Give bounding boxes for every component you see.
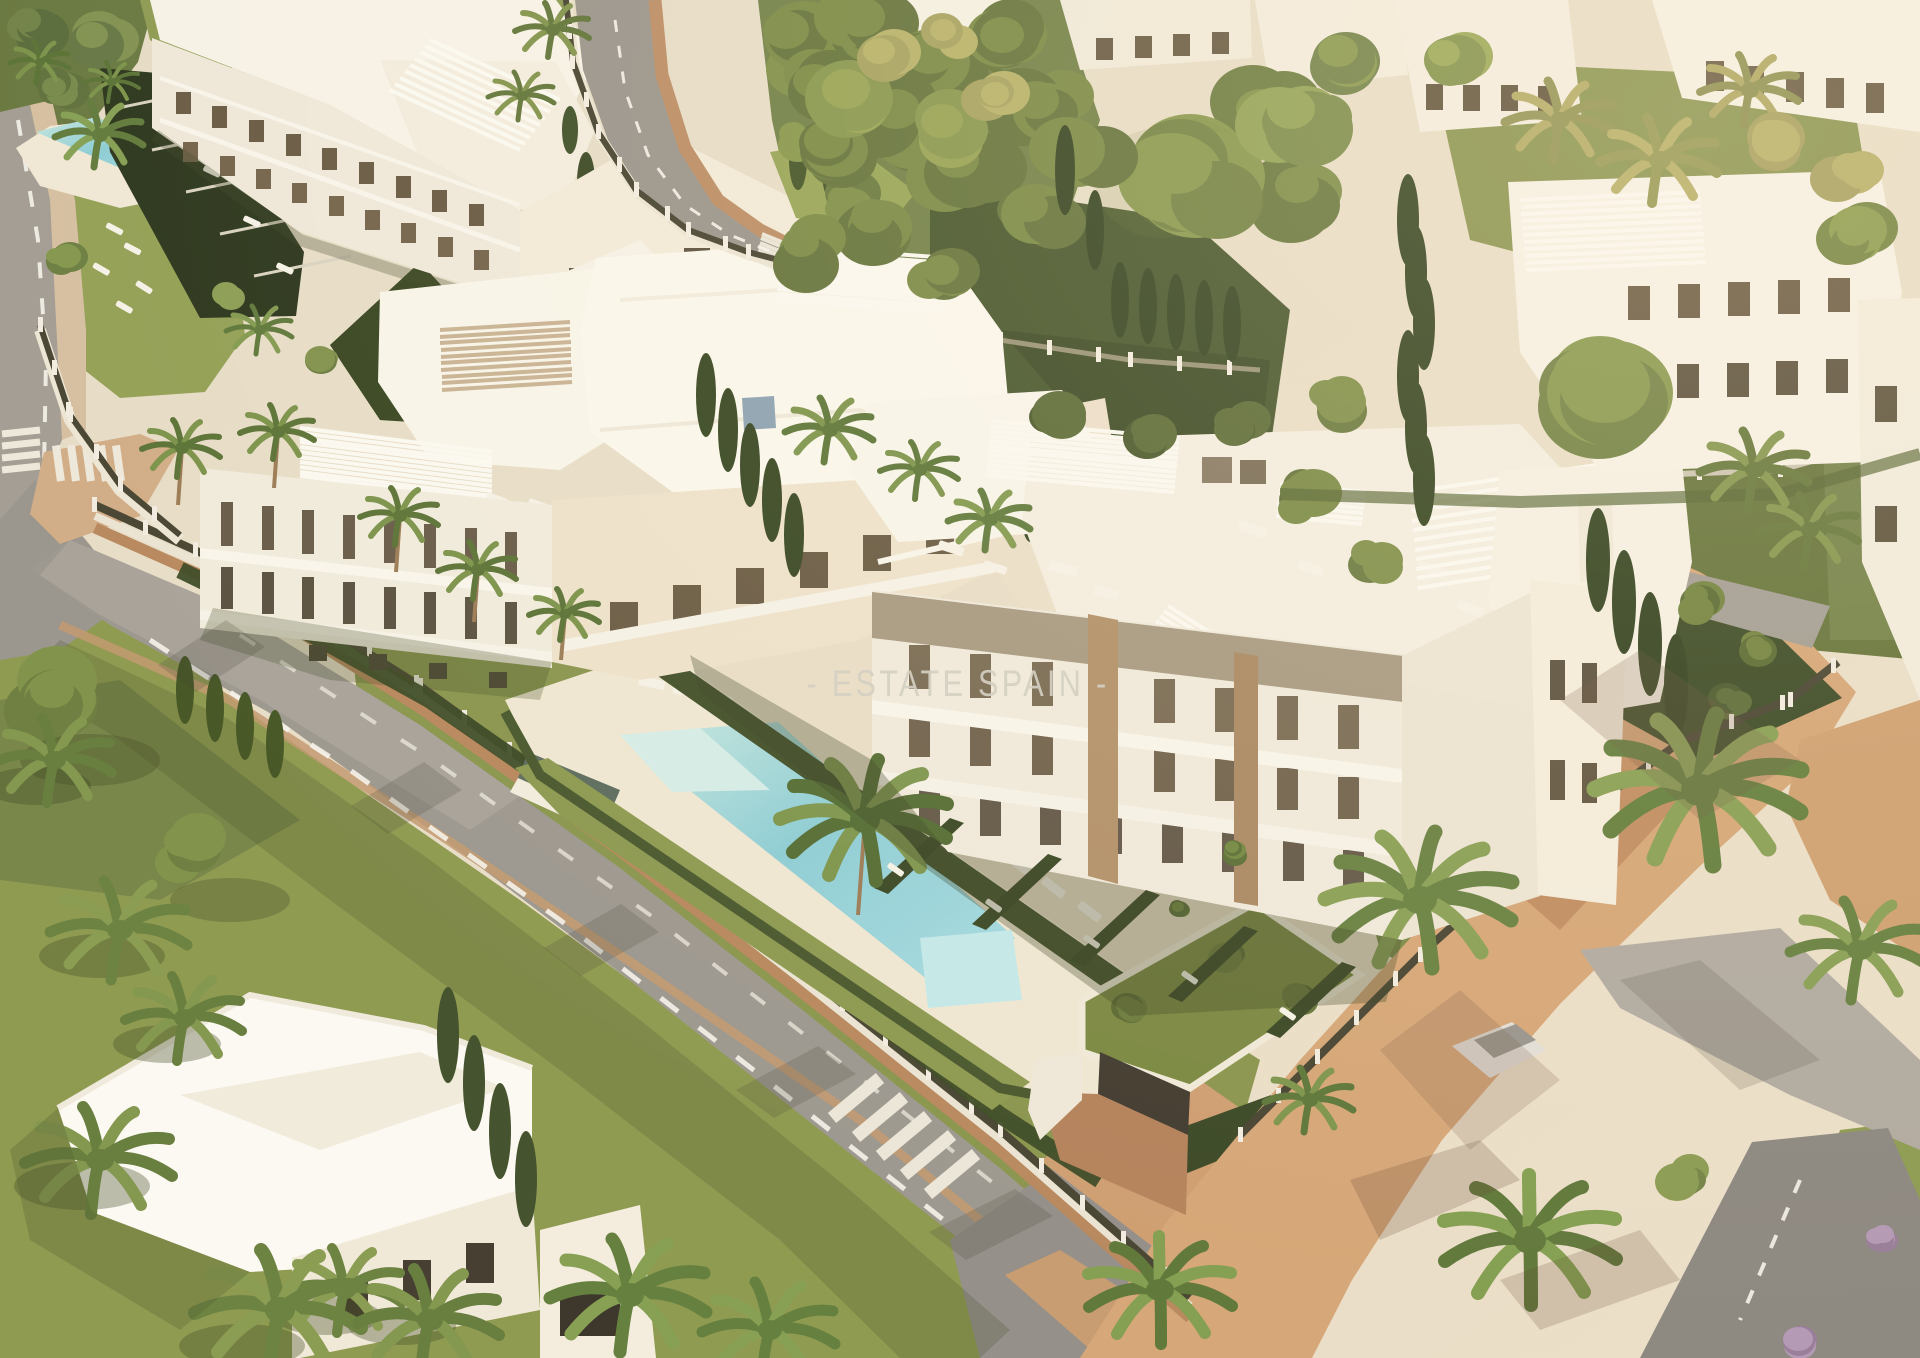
svg-text:- ESTATE SPAIN -: - ESTATE SPAIN - — [807, 663, 1110, 704]
